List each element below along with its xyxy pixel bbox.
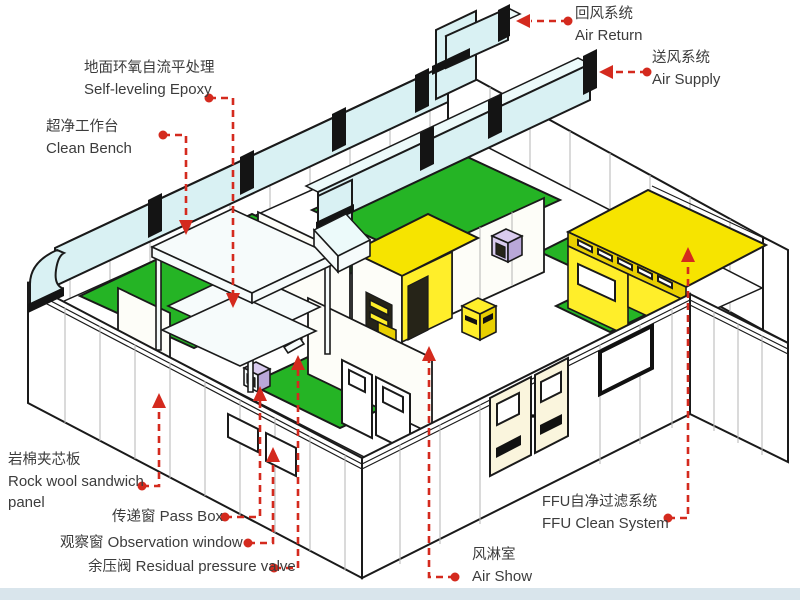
label-observation-en: Observation window [108,534,243,551]
bottom-bar [0,588,800,600]
label-air-shower: 风淋室 Air Show [472,545,532,587]
label-observation-zh: 观察窗 [60,535,104,551]
label-pass-box-zh: 传递窗 [112,509,156,525]
label-rock-wool-en: Rock wool sandwich [8,471,144,492]
label-pass-box-en: Pass Box [160,508,223,525]
label-epoxy-en: Self-leveling Epoxy [84,79,215,100]
yellow-equipment-box [462,298,496,340]
label-air-shower-zh: 风淋室 [472,545,532,566]
cleanroom-diagram: 回风系统 Air Return 送风系统 Air Supply 地面环氧自流平处… [0,0,800,600]
interior-door [342,360,372,438]
label-observation-window: 观察窗 Observation window [60,532,243,554]
label-clean-bench-en: Clean Bench [46,138,132,159]
label-air-shower-en: Air Show [472,566,532,587]
label-valve-zh: 余压阀 [88,559,132,575]
label-air-return: 回风系统 Air Return [575,4,643,46]
label-air-supply-en: Air Supply [652,69,720,90]
label-ffu-en: FFU Clean System [542,513,669,534]
label-clean-bench-zh: 超净工作台 [46,117,132,138]
label-ffu-zh: FFU自净过滤系统 [542,492,669,513]
label-rock-wool: 岩棉夹芯板 Rock wool sandwich panel [8,450,144,513]
label-air-return-zh: 回风系统 [575,4,643,25]
label-air-supply: 送风系统 Air Supply [652,48,720,90]
label-rock-wool-zh: 岩棉夹芯板 [8,450,144,471]
label-air-supply-zh: 送风系统 [652,48,720,69]
label-air-return-en: Air Return [575,25,643,46]
label-clean-bench: 超净工作台 Clean Bench [46,117,132,159]
label-self-leveling-epoxy: 地面环氧自流平处理 Self-leveling Epoxy [84,58,215,100]
wall-ffu-unit [492,229,522,262]
label-valve-en: Residual pressure valve [136,558,296,575]
label-pass-box: 传递窗 Pass Box [112,506,223,528]
label-ffu: FFU自净过滤系统 FFU Clean System [542,492,669,534]
label-epoxy-zh: 地面环氧自流平处理 [84,58,215,79]
label-residual-pressure-valve: 余压阀 Residual pressure valve [88,556,296,578]
